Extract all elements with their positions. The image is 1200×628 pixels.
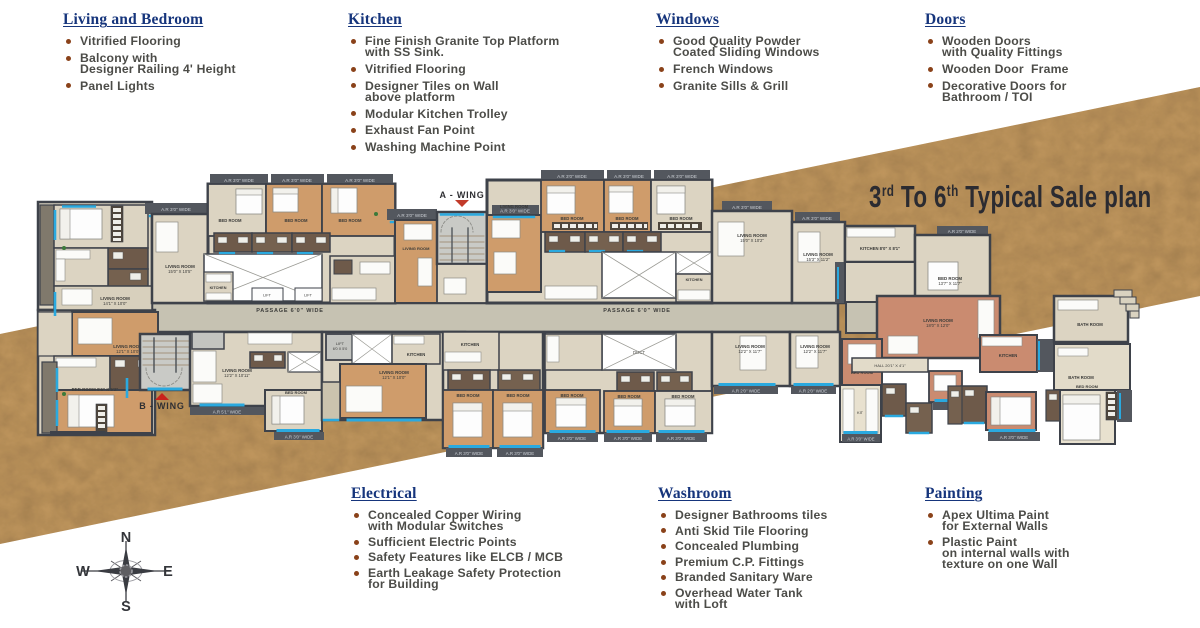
svg-text:12'2" X 11'7": 12'2" X 11'7" — [803, 349, 827, 354]
svg-text:BED ROOM: BED ROOM — [669, 216, 693, 221]
svg-text:A.R 3'0" WIDE: A.R 3'0" WIDE — [732, 205, 762, 210]
svg-text:A.R 3'0" WIDE: A.R 3'0" WIDE — [397, 213, 427, 218]
svg-text:KITCHEN: KITCHEN — [686, 278, 703, 282]
svg-text:A.R 3'0" WIDE: A.R 3'0" WIDE — [282, 178, 312, 183]
svg-text:LIVING ROOM: LIVING ROOM — [500, 204, 529, 209]
svg-text:HALL 20'1" X 4'1": HALL 20'1" X 4'1" — [874, 363, 906, 368]
svg-text:A.R 3'0" WIDE: A.R 3'0" WIDE — [614, 174, 644, 179]
svg-text:BED ROOM: BED ROOM — [285, 390, 308, 395]
svg-text:A.R 3'0" WIDE: A.R 3'0" WIDE — [847, 437, 874, 442]
svg-text:12'2" X 11'7": 12'2" X 11'7" — [738, 349, 762, 354]
svg-text:A.R 3'0" WIDE: A.R 3'0" WIDE — [667, 174, 697, 179]
svg-text:A.R 3'0" WIDE: A.R 3'0" WIDE — [557, 174, 587, 179]
svg-text:15'3" X 11'2": 15'3" X 11'2" — [806, 257, 830, 262]
svg-text:BED ROOM: BED ROOM — [456, 393, 480, 398]
svg-text:A.R 3'0" WIDE: A.R 3'0" WIDE — [285, 435, 314, 440]
svg-text:A.R 3'0" WIDE: A.R 3'0" WIDE — [224, 178, 254, 183]
svg-text:DUCT: DUCT — [633, 350, 646, 355]
svg-text:KITCHEN: KITCHEN — [461, 342, 480, 347]
svg-text:12'2" X 10'11": 12'2" X 10'11" — [224, 373, 250, 378]
svg-text:6'0 X 5'0: 6'0 X 5'0 — [333, 347, 348, 351]
svg-text:A.R 3'0" WIDE: A.R 3'0" WIDE — [506, 451, 535, 456]
svg-text:A.R 3'0" WIDE: A.R 3'0" WIDE — [161, 207, 191, 212]
svg-text:A.R 5'1" WIDE: A.R 5'1" WIDE — [213, 410, 242, 415]
svg-text:BATH ROOM: BATH ROOM — [1068, 375, 1094, 380]
svg-text:KITCHEN: KITCHEN — [999, 353, 1018, 358]
svg-text:A.R 2'0" WIDE: A.R 2'0" WIDE — [799, 389, 828, 394]
svg-text:KIT: KIT — [857, 410, 864, 415]
svg-text:A.R 3'0" WIDE: A.R 3'0" WIDE — [455, 451, 484, 456]
svg-text:KITCHEN: KITCHEN — [407, 352, 426, 357]
svg-text:A.R 3'0" WIDE: A.R 3'0" WIDE — [558, 436, 587, 441]
svg-text:14'1" X 10'0": 14'1" X 10'0" — [103, 301, 127, 306]
svg-text:A - WING: A - WING — [439, 190, 484, 200]
svg-text:BED ROOM: BED ROOM — [560, 216, 584, 221]
svg-text:S: S — [121, 599, 131, 615]
svg-text:BATH ROOM: BATH ROOM — [1077, 322, 1103, 327]
svg-text:BED ROOM: BED ROOM — [506, 393, 530, 398]
svg-text:BED ROOM: BED ROOM — [284, 218, 308, 223]
svg-text:BED ROOM: BED ROOM — [615, 216, 639, 221]
svg-text:A.R 3'0" WIDE: A.R 3'0" WIDE — [614, 436, 643, 441]
svg-text:A.R 3'0" WIDE: A.R 3'0" WIDE — [1000, 435, 1029, 440]
svg-text:BED ROOM: BED ROOM — [617, 394, 641, 399]
svg-text:E: E — [163, 564, 173, 580]
svg-text:A.R 2'0" WIDE: A.R 2'0" WIDE — [732, 389, 761, 394]
svg-text:13'7" X 11'7": 13'7" X 11'7" — [938, 281, 962, 286]
svg-text:KITCHEN 8'0" X 8'1": KITCHEN 8'0" X 8'1" — [860, 246, 900, 251]
svg-text:12'1" X 10'0": 12'1" X 10'0" — [116, 349, 140, 354]
svg-text:LIFT: LIFT — [263, 294, 271, 298]
svg-text:12'1" X 10'0": 12'1" X 10'0" — [382, 375, 406, 380]
svg-text:LIFT: LIFT — [304, 294, 312, 298]
svg-text:15'0" X 10'2": 15'0" X 10'2" — [740, 238, 764, 243]
svg-text:PASSAGE 6'0" WIDE: PASSAGE 6'0" WIDE — [256, 308, 324, 314]
svg-text:BED ROOM 9'6" X 9'2": BED ROOM 9'6" X 9'2" — [72, 387, 119, 392]
svg-text:A.R 3'0" WIDE: A.R 3'0" WIDE — [500, 209, 530, 214]
svg-text:A.R 3'0" WIDE: A.R 3'0" WIDE — [667, 436, 696, 441]
svg-text:3rd To 6th Typical Sale plan: 3rd To 6th Typical Sale plan — [869, 180, 1152, 214]
svg-text:BED ROOM: BED ROOM — [1076, 384, 1099, 389]
svg-text:N: N — [121, 530, 131, 546]
svg-text:PASSAGE 6'0" WIDE: PASSAGE 6'0" WIDE — [603, 308, 671, 314]
svg-text:A.R 2'0" WIDE: A.R 2'0" WIDE — [948, 229, 977, 234]
svg-text:BED ROOM: BED ROOM — [338, 218, 362, 223]
svg-text:A.R 3'0" WIDE: A.R 3'0" WIDE — [345, 178, 375, 183]
svg-text:KITCHEN: KITCHEN — [210, 286, 227, 290]
svg-text:18'0" X 12'0": 18'0" X 12'0" — [926, 323, 950, 328]
svg-text:15'0" X 10'5": 15'0" X 10'5" — [168, 269, 192, 274]
svg-text:BED ROOM: BED ROOM — [671, 394, 695, 399]
svg-text:BED ROOM: BED ROOM — [218, 218, 242, 223]
svg-text:LIFT: LIFT — [336, 341, 345, 346]
svg-text:LIVING ROOM: LIVING ROOM — [403, 246, 431, 251]
svg-text:BED ROOM: BED ROOM — [560, 393, 584, 398]
svg-text:A.R 3'0" WIDE: A.R 3'0" WIDE — [802, 216, 832, 221]
svg-text:B - WING: B - WING — [139, 401, 184, 411]
svg-text:W: W — [76, 564, 90, 580]
